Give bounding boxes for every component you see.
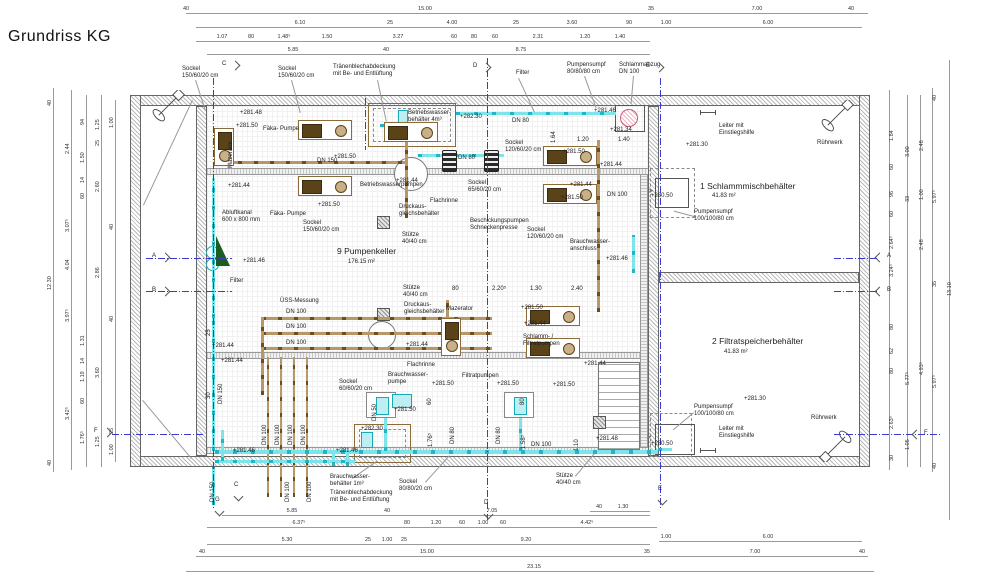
annotation: Druckaus- gleichsbehälter [399, 204, 439, 218]
dimension-label: 3.27 [393, 34, 404, 40]
annotation: +281.30 [686, 142, 708, 149]
section-marker-chevron [875, 287, 885, 297]
dimension-label: 60 [492, 34, 498, 40]
annotation: Schlamm- / Filtratpumpen [523, 334, 560, 348]
ladder-icon [700, 110, 716, 115]
dimension-label: 1.00 [661, 534, 672, 540]
dimension-label: 40 [859, 549, 865, 555]
section-marker-f: F [102, 427, 114, 439]
annotation: +281.50 [521, 305, 543, 312]
dimension-label: 3.97⁵ [65, 309, 71, 322]
annotation: DN 80 [512, 118, 529, 125]
annotation: 1.76⁵ [428, 433, 435, 447]
annotation: Rührwerk [811, 415, 837, 422]
dimension-label: 40 [109, 316, 115, 322]
dimension-label: 3.00 [905, 146, 911, 157]
annotation: +281.44 [584, 361, 606, 368]
dim-chain-line [101, 95, 102, 467]
dimension-label: 1.31 [80, 335, 86, 346]
annotation: DN 100 [262, 425, 269, 445]
dimension-label: 60 [889, 164, 895, 170]
flat-channel-right [640, 175, 648, 447]
dimension-label: 40 [47, 460, 53, 466]
dim-chain-line [71, 90, 72, 470]
annotation: 2 Filtratspeicherbehälter [712, 337, 803, 346]
dimension-label: 40 [932, 95, 938, 101]
annotation: 1.40 [618, 137, 630, 144]
pipe-cyan [632, 235, 635, 273]
dimension-label: 5.85 [288, 47, 299, 53]
annotation: DN 150 [218, 384, 225, 404]
dimension-label: 9.20 [521, 537, 532, 543]
section-marker-chevron [658, 496, 668, 506]
annotation: 41.83 m² [712, 193, 736, 200]
dimension-label: 1.50 [322, 34, 333, 40]
ladder-icon [700, 448, 716, 453]
agitator-icon [818, 426, 858, 462]
pipe-cyan [332, 452, 335, 466]
annotation: +281.46 [594, 108, 616, 115]
annotation: 2.40 [571, 286, 583, 293]
dimension-label: 13.10 [947, 282, 953, 296]
dim-chain-line [86, 95, 87, 467]
section-marker-d: D [481, 62, 493, 74]
section-marker-e: E [657, 495, 669, 507]
annotation: DN 50 [372, 404, 379, 421]
section-line-a [834, 258, 878, 259]
dimension-label: 60 [889, 211, 895, 217]
section-marker-chevron [161, 287, 171, 297]
dimension-label: 2.31 [533, 34, 544, 40]
annotation: Sockel 150/60/20 cm [278, 66, 314, 80]
annotation: 1 Schlammmischbehälter [700, 182, 795, 191]
dimension-label: 25 [95, 140, 101, 146]
process-water-pump [392, 394, 412, 408]
dimension-label: 5.97⁵ [932, 190, 938, 203]
dimension-label: 40 [183, 6, 189, 12]
dimension-label: 40 [47, 100, 53, 106]
dimension-label: 1.00 [382, 537, 393, 543]
section-marker-chevron [875, 253, 885, 263]
section-marker-chevron [161, 253, 171, 263]
wall-inner-tanks [648, 106, 659, 456]
annotation: Pumpensumpf 100/100/80 cm [694, 404, 734, 418]
annotation: +280.50 [651, 441, 673, 448]
section-marker-letter: F [94, 428, 98, 434]
dimension-label: 94 [80, 119, 86, 125]
dimension-label: 3.60 [567, 20, 578, 26]
dimension-label: 60 [459, 520, 465, 526]
section-marker-letter: E [646, 63, 650, 69]
annotation: Fäka- Pumpe [263, 126, 299, 133]
annotation: Sockel 80/80/20 cm [399, 479, 432, 493]
annotation: +281.46 [243, 258, 265, 265]
annotation: +281.30 [744, 396, 766, 403]
annotation: Sockel 150/60/20 cm [182, 66, 218, 80]
dimension-label: 25 [401, 537, 407, 543]
annotation: 80 [520, 398, 527, 405]
annotation: DN 100 [531, 442, 551, 449]
annotation: Leiter mit Einstiegshilfe [719, 426, 754, 440]
dim-chain-line [222, 515, 650, 516]
dimension-label: 5.77⁵ [905, 372, 911, 385]
dimension-label: 2.48 [919, 140, 925, 151]
dimension-label: 80 [248, 34, 254, 40]
annotation: +281.44 [228, 183, 250, 190]
section-line-a [146, 258, 232, 259]
dimension-label: 1.07 [217, 34, 228, 40]
annotation: DN 80 [496, 427, 503, 444]
annotation: Rührwerk [817, 140, 843, 147]
annotation: Betriebswasser- behälter 4m³ [408, 110, 451, 124]
dimension-label: 2.60 [95, 181, 101, 192]
annotation: Druckaus- gleichsbehälter [404, 302, 444, 316]
annotation: 176.15 m² [348, 259, 375, 266]
dimension-label: 23.15 [527, 564, 541, 570]
macerator-unit [441, 318, 461, 356]
pipe-fecal [222, 161, 408, 164]
dimension-label: 1.00 [109, 117, 115, 128]
annotation: Sockel 120/60/20 cm [505, 140, 541, 154]
annotation: +281.50 [553, 382, 575, 389]
dim-chain-line [196, 27, 862, 28]
annotation: +281.44 [221, 358, 243, 365]
annotation: +281.44 [570, 182, 592, 189]
annotation: 9 Pumpenkeller [337, 247, 396, 256]
dimension-label: 1.20 [580, 34, 591, 40]
annotation: +281.50 [432, 381, 454, 388]
agitator-icon [815, 100, 855, 136]
annotation: DN 100 [275, 425, 282, 445]
dimension-label: 5.85 [287, 508, 298, 514]
section-marker-letter: D [473, 63, 477, 69]
dimension-label: 80 [471, 34, 477, 40]
sludge-extraction-circle [620, 109, 638, 127]
dim-chain-line [207, 54, 650, 55]
section-marker-c: C [233, 491, 245, 503]
section-line-c [213, 78, 214, 508]
dimension-label: 15.00 [420, 549, 434, 555]
section-marker-chevron [912, 430, 922, 440]
section-marker-d: D [483, 509, 495, 521]
section-marker-chevron [484, 510, 494, 520]
annotation: +281.50 [236, 123, 258, 130]
dimension-label: 7.00 [750, 549, 761, 555]
dimension-label: 1.76⁵ [80, 431, 86, 444]
dimension-label: 3.07⁵ [65, 219, 71, 232]
section-marker-b: B [874, 286, 886, 298]
section-marker-chevron [231, 61, 241, 71]
annotation: Sockel 120/60/20 cm [527, 227, 563, 241]
annotation: Mazerator [228, 141, 235, 168]
section-marker-chevron [655, 63, 665, 73]
dimension-label: 1.50 [80, 152, 86, 163]
dimension-label: 5.30 [282, 537, 293, 543]
dim-chain-line [196, 556, 868, 557]
annotation: 1.58⁵ [521, 435, 528, 449]
column-40x40 [377, 216, 390, 229]
annotation: 25 [206, 329, 213, 336]
annotation: +281.44 [524, 321, 546, 328]
dimension-label: 60 [451, 34, 457, 40]
dimension-label: 4.93⁵ [919, 362, 925, 375]
dimension-label: 35 [932, 281, 938, 287]
dimension-label: 2.48 [919, 239, 925, 250]
annotation: Stütze 40/40 cm [402, 232, 427, 246]
annotation: +281.34 [610, 127, 632, 134]
dimension-label: 1.84 [889, 130, 895, 141]
dimension-label: 80 [889, 324, 895, 330]
dimension-label: 15.00 [418, 6, 432, 12]
section-marker-letter: B [152, 287, 156, 293]
annotation: DN 100 [286, 340, 306, 347]
fecal-pump [298, 176, 352, 196]
dimension-label: 2.63⁵ [889, 416, 895, 429]
dimension-label: 8.75 [516, 47, 527, 53]
dimension-label: 3.24⁵ [889, 264, 895, 277]
section-marker-letter: E [658, 486, 662, 492]
dimension-label: 30 [889, 455, 895, 461]
section-marker-letter: F [924, 430, 928, 436]
fecal-pump [298, 120, 352, 140]
dim-chain-line [590, 511, 650, 512]
pipe-uss-header [261, 317, 264, 395]
dimension-label: 80 [889, 368, 895, 374]
dimension-label: 35 [648, 6, 654, 12]
section-line-b [146, 291, 232, 292]
dimension-label: 40 [199, 549, 205, 555]
dimension-label: 14 [80, 358, 86, 364]
annotation: Filter [230, 278, 243, 285]
dimension-label: 40 [383, 47, 389, 53]
annotation: 41.83 m² [724, 349, 748, 356]
annotation: +281.46 [233, 448, 255, 455]
section-line [365, 98, 366, 150]
wall-left [130, 95, 141, 467]
annotation: DN 80 [458, 155, 475, 162]
section-marker-b: B [160, 286, 172, 298]
annotation: +282.30 [460, 114, 482, 121]
annotation: Beschickungspumpen Schneckenpresse [470, 218, 529, 232]
annotation: Brauchwasser- pumpe [388, 372, 428, 386]
dimension-label: 60 [80, 398, 86, 404]
dimension-label: 60 [80, 193, 86, 199]
annotation: +281.50 [563, 149, 585, 156]
annotation: Stütze 40/40 cm [403, 285, 428, 299]
annotation: 2.20⁵ [492, 286, 506, 293]
sump-arrow: ➤ [646, 434, 652, 441]
dim-chain-line [186, 571, 874, 572]
section-marker-a: A [160, 252, 172, 264]
section-marker-chevron [482, 63, 492, 73]
flat-channel-mid [207, 352, 648, 359]
section-marker-g: G [214, 506, 226, 518]
annotation: DN 100 [286, 309, 306, 316]
annotation: Brauchwasser- behälter 1m³ [330, 474, 370, 488]
annotation: DN 100 [288, 425, 295, 445]
section-marker-chevron [234, 492, 244, 502]
dimension-label: 40 [384, 508, 390, 514]
annotation: 60 [427, 398, 434, 405]
annotation: DN 100 [285, 482, 292, 502]
annotation: 30 [206, 392, 213, 399]
tank-pump-glyph [361, 432, 373, 448]
dim-chain-line [196, 41, 650, 42]
dimension-label: 3.42⁵ [65, 407, 71, 420]
annotation: Pumpensumpf 80/80/80 cm [567, 62, 606, 76]
dim-chain-line [186, 13, 868, 14]
dimension-label: 7.00 [752, 6, 763, 12]
dimension-label: 60 [500, 520, 506, 526]
dimension-label: 4.42⁵ [581, 520, 594, 526]
annotation: Leiter mit Einstiegshilfe [719, 123, 754, 137]
section-marker-chevron [215, 507, 225, 517]
dimension-label: 1.19 [80, 371, 86, 382]
filtrate-pump-unit [504, 392, 534, 418]
annotation: +281.50 [497, 381, 519, 388]
dimension-label: 62 [889, 348, 895, 354]
annotation: 1.10 [574, 439, 581, 451]
dimension-label: 1.00 [661, 20, 672, 26]
dimension-label: 80 [404, 520, 410, 526]
dimension-label: 1.00 [109, 444, 115, 455]
dimension-label: 1.25 [95, 119, 101, 130]
annotation: 1.20 [577, 137, 589, 144]
filter-wedge [216, 236, 230, 266]
annotation: +281.50 [561, 195, 583, 202]
annotation: Pumpensumpf 100/100/80 cm [694, 209, 734, 223]
annotation: DN 80 [450, 427, 457, 444]
annotation: Sockel 65/60/20 cm [468, 180, 501, 194]
annotation: DN 100 [301, 425, 308, 445]
section-marker-letter: D [484, 500, 488, 506]
dim-chain-line [659, 541, 862, 542]
annotation: +281.48 [596, 436, 618, 443]
annotation: +281.44 [212, 343, 234, 350]
annotation: +281.46 [336, 448, 358, 455]
wall-inner-annex [196, 106, 207, 456]
section-marker-letter: C [222, 61, 226, 67]
dimension-label: 35 [644, 549, 650, 555]
annotation: +281.46 [606, 256, 628, 263]
dimension-label: 40 [596, 504, 602, 510]
annotation: Brauchwasser- anschluss [570, 239, 610, 253]
annotation: DN 100 [286, 324, 306, 331]
dim-chain-line [115, 100, 116, 462]
wall-between-tanks [659, 272, 859, 283]
service-water-pump [442, 150, 457, 172]
dim-chain-line [207, 527, 657, 528]
wall-right [859, 95, 870, 467]
annotation: Tränenblechabdeckung mit Be- und Entlüft… [333, 64, 396, 78]
annotation: Stütze 40/40 cm [556, 473, 581, 487]
floor-plan-canvas: Grundriss KG ➤ ➤ [0, 0, 1000, 584]
section-marker-c: C [230, 60, 242, 72]
dimension-label: 1.40 [615, 34, 626, 40]
dimension-label: 2.44 [65, 143, 71, 154]
section-line-f [112, 434, 205, 435]
annotation: ÜSS-Messung [280, 298, 319, 305]
dim-chain-line [207, 544, 650, 545]
dimension-label: 4.04 [65, 259, 71, 270]
annotation: Sockel 150/60/20 cm [303, 220, 339, 234]
annotation: Abluftkanal 600 x 800 mm [222, 210, 260, 224]
pipe-cyan [221, 430, 224, 461]
section-marker-chevron [103, 428, 113, 438]
annotation: Mazerator [446, 306, 473, 313]
dimension-label: 96 [889, 191, 895, 197]
annex-floor [141, 106, 196, 456]
dimension-label: 1.20 [431, 520, 442, 526]
section-marker-letter: A [887, 253, 891, 259]
dimension-label: 6.00 [763, 20, 774, 26]
dimension-label: 33 [905, 196, 911, 202]
dimension-label: 1.30 [618, 504, 629, 510]
section-marker-f: F [911, 429, 923, 441]
section-marker-letter: C [234, 482, 238, 488]
annotation: DN 150 [317, 158, 337, 165]
annotation: Flachrinne [407, 362, 435, 369]
annotation: +281.50 [318, 202, 340, 209]
drawing-title: Grundriss KG [8, 28, 111, 46]
dimension-label: 2.64⁵ [889, 236, 895, 249]
annotation: Fäka- Pumpe [270, 211, 306, 218]
dimension-label: 12.30 [47, 276, 53, 290]
dim-chain-line [889, 90, 890, 470]
dimension-label: 5.97⁵ [932, 375, 938, 388]
dim-chain-line [53, 88, 54, 472]
section-line-d [487, 58, 488, 520]
pipe-cyan-main [215, 450, 658, 454]
column-40x40 [593, 416, 606, 429]
annotation: Filter [516, 70, 529, 77]
annotation: +281.44 [600, 162, 622, 169]
section-marker-a: A [874, 252, 886, 264]
dimension-label: 25 [365, 537, 371, 543]
annotation: Tränenblechabdeckung mit Be- und Entlüft… [330, 490, 393, 504]
dimension-label: 1.25 [95, 436, 101, 447]
dimension-label: 14 [80, 177, 86, 183]
dimension-label: 6.37⁵ [293, 520, 306, 526]
fecal-pump [384, 122, 438, 142]
dimension-label: 1.48⁵ [278, 34, 291, 40]
agitator-icon [146, 90, 186, 126]
dimension-label: 40 [109, 224, 115, 230]
dimension-label: 3.60 [95, 367, 101, 378]
section-marker-letter: B [887, 287, 891, 293]
dimension-label: 2.86 [95, 267, 101, 278]
annotation: Sockel 60/60/20 cm [339, 379, 372, 393]
dimension-label: 1.00 [919, 189, 925, 200]
dimension-label: 6.00 [763, 534, 774, 540]
annotation: DN 100 [307, 482, 314, 502]
dimension-label: 40 [932, 463, 938, 469]
annotation: DN 100 [607, 192, 627, 199]
annotation: +281.44 [406, 342, 428, 349]
annotation: 80 [452, 286, 459, 293]
annotation: +280.50 [651, 193, 673, 200]
wall-top [130, 95, 870, 106]
dimension-label: 90 [626, 20, 632, 26]
annotation: Betriebswasserpumpen [360, 182, 423, 189]
section-marker-letter: A [152, 253, 156, 259]
dimension-label: 40 [848, 6, 854, 12]
annotation: +281.50 [394, 407, 416, 414]
annotation: 1.64 [551, 131, 558, 143]
dimension-label: 6.10 [295, 20, 306, 26]
section-line-b [834, 291, 878, 292]
annotation: +282.30 [361, 426, 383, 433]
